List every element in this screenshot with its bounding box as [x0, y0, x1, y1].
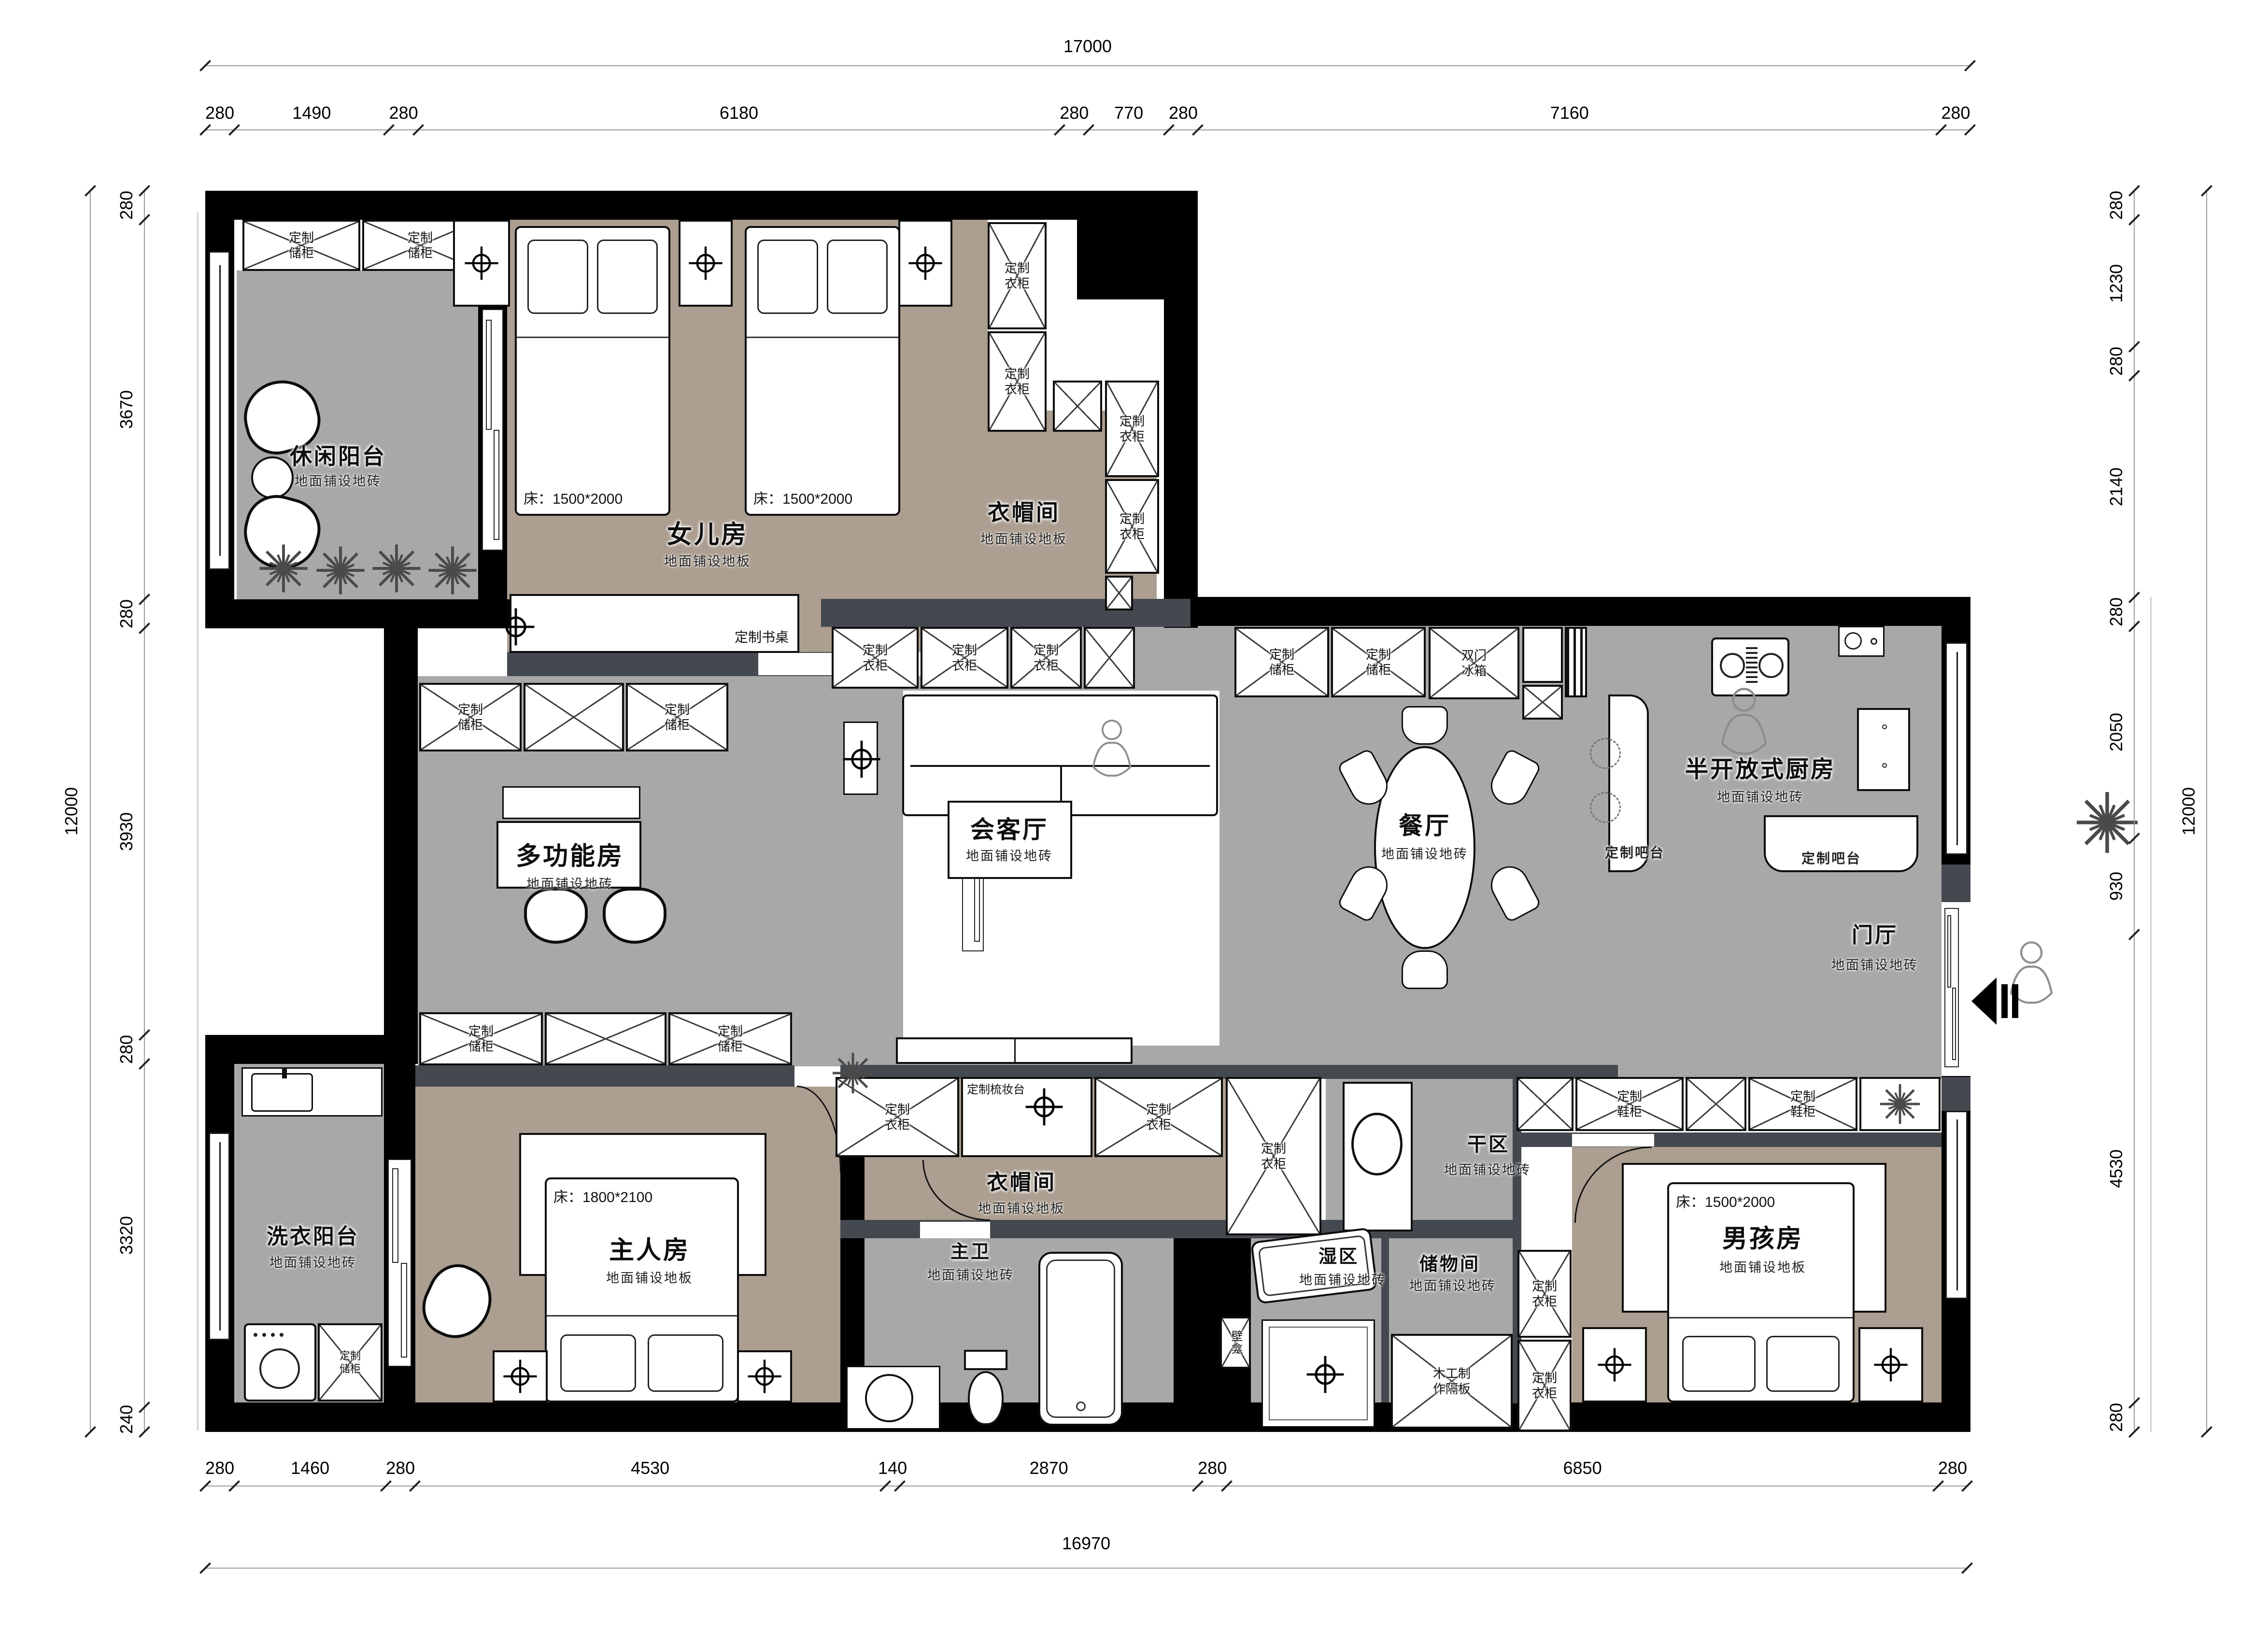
cabinet-37-label: 木工制 作隔板	[1433, 1366, 1471, 1397]
cabinet-4	[1053, 381, 1102, 432]
room-label-dry-area: 干区	[1467, 1129, 1510, 1157]
target-icon	[464, 246, 499, 281]
cabinet-37: 木工制 作隔板	[1391, 1334, 1513, 1429]
bed-daughter-2-pillow-1	[827, 240, 888, 314]
room-sublabel-living-room: 地面铺设地砖	[966, 846, 1053, 864]
window-balcony-left	[209, 251, 230, 570]
sofa	[902, 694, 1218, 816]
dim-value-top-0: 280	[205, 103, 234, 123]
washer-dot-3	[280, 1333, 283, 1337]
cabinet-12-label: 定制 储柜	[458, 702, 483, 733]
target-symbol-box-2	[898, 220, 952, 307]
cabinet-6: 定制 衣柜	[1105, 479, 1159, 574]
cabinet-15-label: 定制 储柜	[468, 1023, 494, 1055]
cabinet-21	[1522, 627, 1563, 683]
cabinet-0: 定制 储柜	[242, 220, 360, 271]
window-kitchen-right	[1945, 642, 1968, 855]
room-sublabel-daughter-room: 地面铺设地板	[664, 551, 751, 570]
bed-daughter-2-blanket-line	[747, 337, 898, 338]
cabinet-19: 定制 储柜	[1331, 627, 1426, 697]
dim-value-left-1: 3670	[116, 390, 137, 429]
bed-boy: 床：1500*2000	[1667, 1182, 1855, 1402]
sliding-door-balcony-leaf-0	[486, 320, 492, 430]
target-icon	[1025, 1088, 1063, 1126]
label-bar-1: 定制吧台	[1605, 842, 1665, 862]
cabinet-14: 定制 储柜	[626, 683, 728, 751]
dim-value-bottom-4: 140	[878, 1458, 907, 1478]
cabinet-25: 定制 鞋柜	[1575, 1077, 1684, 1131]
wall-3	[1191, 597, 1970, 626]
plant-icon-3	[424, 542, 481, 599]
wall-9	[384, 628, 418, 1064]
dim-value-right-5: 2050	[2106, 713, 2126, 751]
dim-overall-line-top	[205, 65, 1970, 66]
master-bathtub	[1038, 1252, 1123, 1426]
window-kitchen-right-mullion	[1956, 652, 1958, 845]
dim-overall-line-left	[90, 191, 91, 1432]
dim-line-bottom	[205, 1486, 1967, 1486]
dim-value-right-1: 1230	[2106, 264, 2126, 303]
master-bathtub-drain	[1076, 1401, 1086, 1411]
cabinet-14-label: 定制 储柜	[665, 702, 690, 733]
cabinet-35-label: 定制 储柜	[340, 1349, 361, 1376]
toilet-bowl	[968, 1371, 1004, 1425]
bed-master-blanket-line	[547, 1315, 737, 1317]
person-figure-1	[1708, 672, 1780, 762]
floor-plan: 定制 储柜定制 储柜定制 衣柜定制 衣柜定制 衣柜定制 衣柜定制 衣柜定制 衣柜…	[0, 0, 2268, 1628]
room-label-master-bath: 主卫	[950, 1237, 991, 1263]
target-icon	[1597, 1347, 1632, 1382]
dining-chair-0	[1402, 706, 1448, 745]
target-icon	[908, 246, 943, 281]
bed-daughter-1-pillow-1	[597, 240, 658, 314]
cabinet-16	[545, 1012, 666, 1065]
kitchen-sink-bowl	[1844, 632, 1862, 650]
window-balcony-left-mullion	[219, 265, 221, 556]
cabinet-36-label: 壁龛	[1228, 1330, 1243, 1355]
cabinet-33-label: 定制 衣柜	[1532, 1278, 1557, 1310]
cabinet-7	[1105, 576, 1133, 610]
dim-value-top-3: 6180	[720, 103, 758, 123]
target-symbol-box-4	[737, 1350, 792, 1402]
dim-value-bottom-3: 4530	[631, 1458, 669, 1478]
cabinet-24	[1517, 1077, 1573, 1131]
plant-icon-1	[312, 542, 369, 599]
wall-7	[205, 599, 512, 628]
dim-value-right-0: 280	[2106, 191, 2126, 220]
sliding-door-laundry-leaf-1	[401, 1263, 408, 1358]
wall-16	[821, 599, 1191, 627]
wall-1	[1077, 220, 1198, 299]
cabinet-20: 双门 冰箱	[1429, 627, 1519, 699]
cabinet-27-label: 定制 鞋柜	[1790, 1089, 1815, 1120]
dim-overall-bottom: 16970	[1062, 1533, 1110, 1554]
cabinet-30-label: 定制梳妆台	[967, 1083, 1025, 1097]
room-label-laundry-balcony: 洗衣阳台	[267, 1219, 359, 1250]
dim-value-right-8: 280	[2106, 1403, 2126, 1432]
dim-overall-line-bottom	[205, 1568, 1967, 1569]
cabinet-0-label: 定制 储柜	[289, 230, 314, 261]
window-boy-right-mullion	[1956, 1119, 1958, 1290]
dim-value-bottom-0: 280	[205, 1458, 234, 1478]
window-boy-right	[1945, 1111, 1968, 1299]
boundary-line-0	[197, 212, 198, 1430]
bed-daughter-2-size-label: 床：1500*2000	[753, 487, 852, 508]
wall-23	[1942, 864, 1970, 903]
door-gap-boy	[1572, 1134, 1654, 1147]
room-label-kitchen: 半开放式厨房	[1685, 750, 1836, 784]
dim-value-right-2: 280	[2106, 347, 2126, 376]
cabinet-23	[1565, 627, 1587, 697]
balcony-table	[251, 456, 294, 499]
entry-door-leaf-leaf-1	[1952, 988, 1956, 1060]
toilet-tank	[964, 1350, 1007, 1370]
dim-value-top-2: 280	[389, 103, 418, 123]
cabinet-3: 定制 衣柜	[988, 331, 1047, 432]
dim-overall-line-right	[2206, 191, 2207, 1432]
room-sublabel-leisure-balcony: 地面铺设地砖	[295, 471, 382, 490]
target-symbol-box-6	[1858, 1327, 1923, 1402]
tv-console-divider	[1014, 1039, 1016, 1062]
plant-icon-2	[368, 540, 425, 597]
floor-plan-canvas: 定制 储柜定制 储柜定制 衣柜定制 衣柜定制 衣柜定制 衣柜定制 衣柜定制 衣柜…	[0, 0, 2268, 1628]
bed-daughter-1: 床：1500*2000	[515, 226, 670, 516]
bed-daughter-2-pillow-0	[757, 240, 818, 314]
cabinet-26	[1686, 1077, 1746, 1131]
cabinet-3-label: 定制 衣柜	[1005, 366, 1030, 397]
target-icon	[1306, 1355, 1345, 1394]
dim-value-top-7: 7160	[1550, 103, 1589, 123]
room-sublabel-storage-room: 地面铺设地砖	[1409, 1275, 1496, 1294]
cabinet-5: 定制 衣柜	[1105, 381, 1159, 477]
dry-area-basin	[1343, 1082, 1413, 1232]
cabinet-15: 定制 储柜	[419, 1012, 543, 1065]
dim-value-right-7: 4530	[2106, 1149, 2126, 1188]
door-gap-mbath	[920, 1222, 990, 1238]
cabinet-8: 定制 衣柜	[832, 627, 919, 689]
room-label-boy-room: 男孩房	[1722, 1218, 1803, 1255]
cabinet-33: 定制 衣柜	[1517, 1250, 1572, 1338]
door-gap-daughter	[758, 653, 840, 675]
room-sublabel-wet-area: 地面铺设地砖	[1299, 1270, 1386, 1288]
target-icon	[747, 1359, 782, 1394]
arc-chair-3	[603, 888, 666, 944]
wall-0	[205, 191, 1198, 220]
dim-value-top-5: 770	[1114, 103, 1143, 123]
cabinet-22	[1522, 685, 1563, 720]
target-icon	[503, 1359, 538, 1394]
bed-boy-pillow-0	[1682, 1336, 1756, 1392]
dim-value-bottom-2: 280	[386, 1458, 415, 1478]
cabinet-29-label: 定制 衣柜	[885, 1102, 910, 1133]
room-label-daughter-room: 女儿房	[667, 514, 748, 551]
room-label-storage-room: 储物间	[1419, 1249, 1480, 1276]
target-icon	[496, 608, 535, 646]
cabinet-9-label: 定制 衣柜	[952, 642, 977, 674]
dim-value-top-8: 280	[1941, 103, 1970, 123]
washer-dot-0	[254, 1333, 257, 1337]
cabinet-35: 定制 储柜	[318, 1323, 383, 1401]
cabinet-12: 定制 储柜	[419, 683, 522, 751]
bed-master: 床：1800*2100	[545, 1177, 739, 1402]
target-symbol-box-1	[679, 220, 733, 307]
dim-value-left-2: 280	[116, 599, 137, 628]
bed-daughter-1-blanket-line	[517, 337, 668, 338]
cabinet-5-label: 定制 衣柜	[1120, 413, 1145, 445]
cabinet-6-label: 定制 衣柜	[1120, 511, 1145, 542]
room-sublabel-master-room: 地面铺设地板	[606, 1268, 693, 1287]
cabinet-8-label: 定制 衣柜	[863, 642, 888, 674]
washer-dot-2	[271, 1333, 275, 1337]
dim-value-left-6: 240	[116, 1405, 137, 1434]
cabinet-27: 定制 鞋柜	[1748, 1077, 1857, 1131]
bed-daughter-1-pillow-0	[527, 240, 588, 314]
tv-console	[896, 1037, 1133, 1064]
laundry-tap	[282, 1068, 287, 1078]
room-sublabel-dining-room: 地面铺设地砖	[1381, 844, 1468, 863]
cabinet-25-label: 定制 鞋柜	[1617, 1089, 1642, 1120]
room-label-cloakroom-south: 衣帽间	[987, 1165, 1056, 1196]
kitchen-sink-drain	[1871, 638, 1877, 645]
dim-value-right-4: 280	[2106, 597, 2126, 626]
wall-20	[1381, 1236, 1389, 1402]
bed-daughter-1-size-label: 床：1500*2000	[524, 487, 623, 508]
dim-value-right-6: 930	[2106, 872, 2126, 901]
wall-2	[1164, 299, 1198, 628]
person-figure-0	[1081, 701, 1143, 788]
wall-10	[205, 1035, 418, 1064]
desk: 定制书桌	[510, 594, 799, 653]
dry-basin-bowl	[1351, 1113, 1403, 1175]
desk-label: 定制书桌	[735, 627, 789, 646]
plant-icon-5	[2071, 786, 2143, 859]
room-sublabel-kitchen: 地面铺设地砖	[1717, 787, 1804, 806]
cabinet-17-label: 定制 储柜	[718, 1023, 743, 1055]
room-label-leisure-balcony: 休闲阳台	[290, 439, 386, 471]
label-bar-2: 定制吧台	[1801, 848, 1861, 867]
toilet-icon	[962, 1350, 1010, 1430]
cabinet-2: 定制 衣柜	[988, 222, 1047, 329]
cabinet-13	[524, 683, 624, 751]
room-label-living-room: 会客厅	[970, 810, 1049, 845]
kitchen-tall-cabinet	[1857, 708, 1910, 791]
room-sublabel-boy-room: 地面铺设地板	[1719, 1257, 1806, 1276]
entry-door-leaf	[1944, 908, 1959, 1067]
cabinet-18-label: 定制 储柜	[1269, 647, 1294, 678]
target-symbol-box-0	[453, 220, 510, 307]
dim-value-top-6: 280	[1169, 103, 1198, 123]
cabinet-31-label: 定制 衣柜	[1146, 1102, 1171, 1133]
cabinet-32: 定制 衣柜	[1226, 1077, 1321, 1235]
room-label-master-room: 主人房	[609, 1230, 690, 1266]
bar-stool-0	[1590, 738, 1621, 769]
bed-boy-blanket-line	[1669, 1317, 1853, 1318]
cabinet-28	[1859, 1077, 1941, 1131]
dim-value-bottom-7: 6850	[1563, 1458, 1602, 1478]
dim-value-bottom-8: 280	[1938, 1458, 1967, 1478]
room-sublabel-laundry-balcony: 地面铺设地砖	[269, 1252, 356, 1271]
target-symbol-box-5	[1582, 1327, 1647, 1402]
cabinet-11	[1084, 627, 1135, 689]
kitchen-cabinet-knob-0	[1882, 724, 1887, 729]
washer-dot-1	[262, 1333, 266, 1337]
dim-value-bottom-5: 2870	[1030, 1458, 1068, 1478]
cabinet-1-label: 定制 储柜	[408, 230, 433, 261]
dim-overall-left: 12000	[61, 787, 82, 835]
sliding-door-balcony	[482, 309, 503, 551]
master-bathtub-inner	[1046, 1260, 1115, 1418]
bar-stool-1	[1590, 792, 1621, 823]
room-sublabel-master-bath: 地面铺设地砖	[927, 1265, 1014, 1284]
room-sublabel-multi-function: 地面铺设地砖	[526, 874, 613, 892]
bed-master-size-label: 床：1800*2100	[553, 1185, 652, 1206]
kitchen-sink-icon	[1838, 626, 1885, 657]
dim-value-bottom-6: 280	[1198, 1458, 1227, 1478]
cabinet-20-label: 双门 冰箱	[1461, 648, 1487, 679]
window-laundry-left	[209, 1133, 230, 1340]
room-sublabel-dry-area: 地面铺设地砖	[1444, 1160, 1531, 1178]
wall-24	[1942, 1077, 1970, 1111]
room-label-wet-area: 湿区	[1318, 1242, 1359, 1268]
dim-value-left-4: 280	[116, 1035, 137, 1064]
cabinet-34-label: 定制 衣柜	[1532, 1370, 1557, 1401]
cabinet-36: 壁龛	[1220, 1317, 1251, 1369]
dim-line-left	[144, 191, 145, 1432]
dim-value-left-3: 3930	[116, 812, 137, 851]
cabinet-34: 定制 衣柜	[1517, 1340, 1572, 1431]
cabinet-19-label: 定制 储柜	[1366, 647, 1391, 678]
washing-machine-icon	[244, 1323, 316, 1401]
washer-drum	[259, 1348, 300, 1389]
cabinet-32-label: 定制 衣柜	[1261, 1141, 1286, 1172]
bed-daughter-2: 床：1500*2000	[745, 226, 900, 516]
target-icon	[688, 246, 723, 281]
mbath-basin-bowl	[865, 1374, 913, 1422]
boundary-line-1	[2150, 597, 2152, 1432]
room-label-dining-room: 餐厅	[1399, 807, 1451, 841]
cabinet-18: 定制 储柜	[1234, 627, 1329, 697]
cabinet-10-label: 定制 衣柜	[1034, 642, 1059, 674]
room-sublabel-foyer: 地面铺设地砖	[1831, 955, 1918, 974]
dim-value-top-4: 280	[1060, 103, 1089, 123]
dim-value-left-0: 280	[116, 191, 137, 220]
dim-overall-top: 17000	[1063, 36, 1112, 57]
target-symbol-box-3	[493, 1350, 548, 1402]
arc-chair-2	[524, 888, 588, 944]
entry-door-leaf-leaf-0	[1947, 915, 1951, 988]
target-icon	[1873, 1347, 1908, 1382]
dim-value-right-3: 2140	[2106, 467, 2126, 506]
plant-icon-0	[255, 540, 312, 597]
bed-master-pillow-1	[648, 1334, 724, 1392]
cabinet-31: 定制 衣柜	[1094, 1077, 1223, 1157]
dim-value-bottom-1: 1460	[291, 1458, 329, 1478]
target-icon	[842, 740, 881, 779]
entry-arrow-icon	[1971, 975, 2029, 1028]
plant-icon-4	[829, 1049, 877, 1097]
dining-chair-1	[1402, 950, 1448, 989]
room-label-cloakroom-north: 衣帽间	[988, 495, 1060, 527]
cabinet-2-label: 定制 衣柜	[1005, 260, 1030, 292]
multi-cabinet	[502, 786, 640, 819]
window-laundry-left-mullion	[219, 1142, 221, 1331]
cabinet-17: 定制 储柜	[668, 1012, 792, 1065]
bed-master-pillow-0	[560, 1334, 637, 1392]
kitchen-cabinet-knob-1	[1882, 763, 1887, 768]
dim-value-top-1: 1490	[292, 103, 331, 123]
room-label-foyer: 门厅	[1852, 918, 1898, 948]
room-sublabel-cloakroom-south: 地面铺设地板	[978, 1198, 1065, 1217]
bed-boy-pillow-1	[1766, 1336, 1840, 1392]
room-sublabel-cloakroom-north: 地面铺设地板	[980, 529, 1067, 548]
cabinet-10: 定制 衣柜	[1010, 627, 1082, 689]
sliding-door-laundry-leaf-0	[392, 1168, 399, 1263]
wall-17	[415, 1065, 794, 1087]
sliding-door-balcony-leaf-1	[494, 430, 499, 540]
laundry-sink-icon	[251, 1073, 313, 1112]
room-label-multi-function: 多功能房	[516, 836, 624, 872]
dim-value-left-5: 3320	[116, 1216, 137, 1255]
mbath-basin	[846, 1366, 940, 1430]
bed-boy-size-label: 床：1500*2000	[1676, 1190, 1775, 1211]
sliding-door-laundry	[388, 1159, 411, 1367]
cabinet-9: 定制 衣柜	[921, 627, 1008, 689]
dim-overall-right: 12000	[2179, 787, 2199, 835]
